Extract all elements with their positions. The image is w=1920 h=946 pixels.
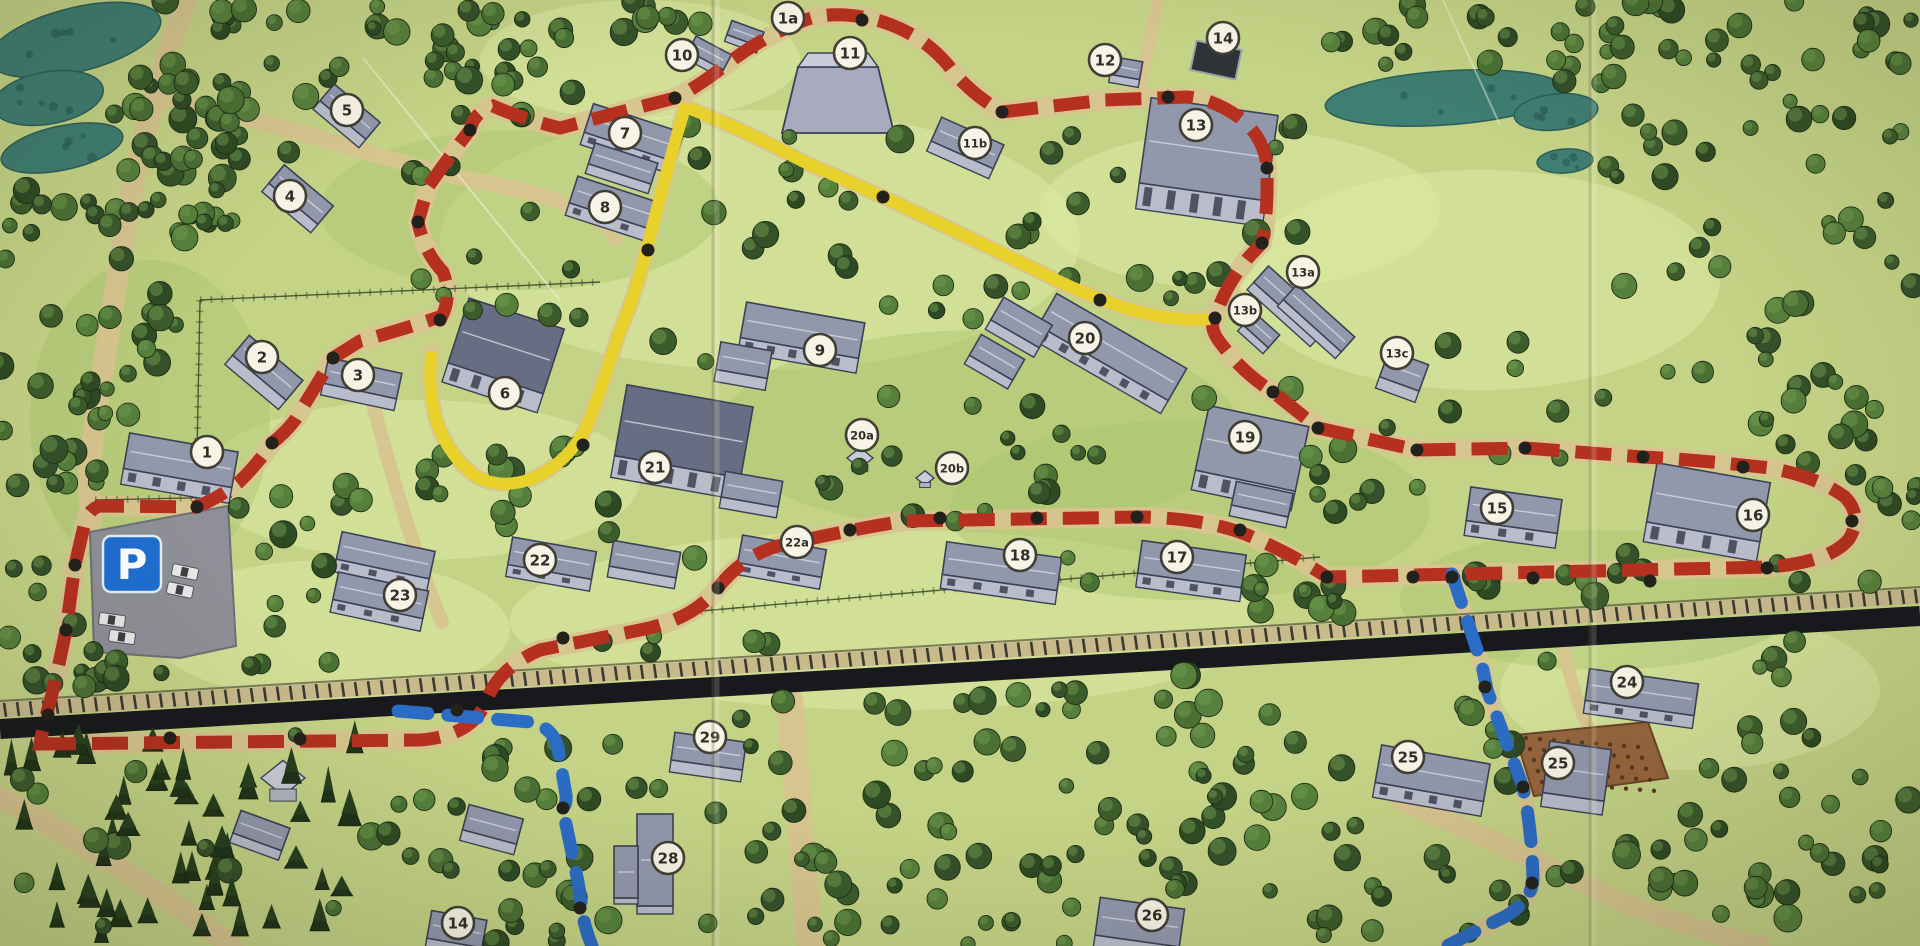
illustrated-site-map: 11a23456789101111b121313a13b13c141516171…	[0, 0, 1920, 946]
site-map-canvas: 11a23456789101111b121313a13b13c141516171…	[0, 0, 1920, 946]
photo-vignette	[0, 0, 1920, 946]
